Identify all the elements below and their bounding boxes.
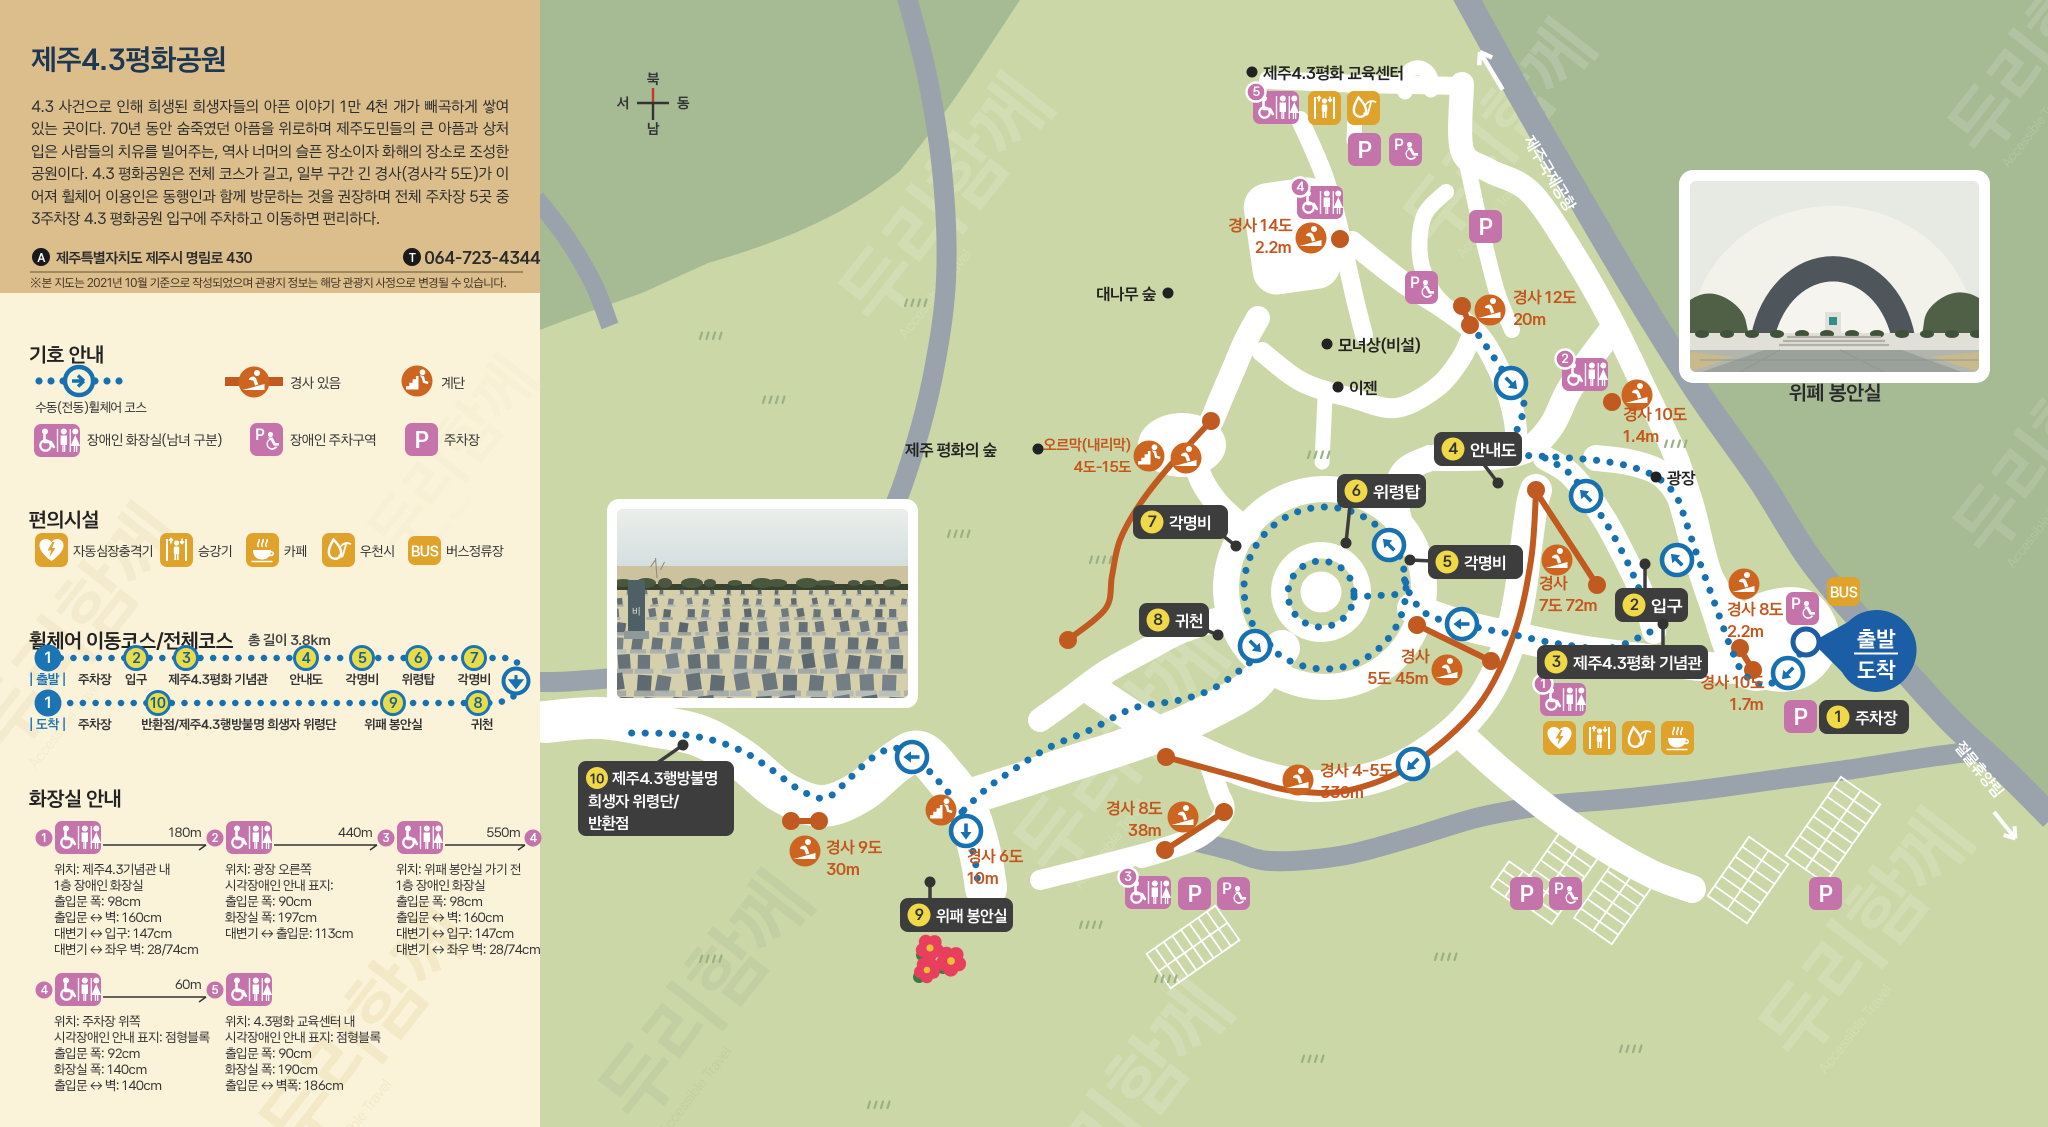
svg-text:1: 1 [44,693,51,712]
svg-text:30m: 30m [826,860,860,880]
svg-text:광장: 광장 [1667,469,1695,489]
svg-text:4: 4 [530,831,538,845]
svg-text:위치: 제주4.3기념관 내: 위치: 제주4.3기념관 내 [53,862,170,878]
svg-text:2: 2 [1562,352,1569,367]
svg-text:자동심장충격기: 자동심장충격기 [72,544,153,560]
svg-text:위치: 주차장 위쪽: 위치: 주차장 위쪽 [53,1014,140,1030]
svg-text:경사 8도: 경사 8도 [1106,799,1162,819]
svg-text:반환점: 반환점 [588,813,629,833]
svg-text:대나무 숲: 대나무 숲 [1096,285,1157,305]
svg-text:경사 10도: 경사 10도 [1623,405,1687,425]
svg-text:대변기 ↔ 좌우 벽: 28/74cm: 대변기 ↔ 좌우 벽: 28/74cm [396,942,540,958]
svg-text:주차장: 주차장 [1855,709,1897,729]
svg-text:7: 7 [470,649,478,667]
svg-text:7도 72m: 7도 72m [1539,596,1598,616]
svg-text:편의시설: 편의시설 [29,508,99,533]
svg-text:2: 2 [1630,595,1639,614]
svg-text:출입문 ↔ 벽폭: 186cm: 출입문 ↔ 벽폭: 186cm [225,1078,343,1094]
svg-text:대변기 ↔ 입구: 147cm: 대변기 ↔ 입구: 147cm [54,926,171,942]
svg-text:2: 2 [132,649,140,667]
svg-text:경사 있음: 경사 있음 [290,375,341,392]
svg-text:주차장: 주차장 [78,717,112,733]
svg-text:4: 4 [1448,439,1458,458]
svg-text:시각장애인 안내 표지:: 시각장애인 안내 표지: [225,878,333,894]
svg-text:38m: 38m [1128,821,1162,841]
svg-text:기호 안내: 기호 안내 [29,343,104,368]
svg-text:2.2m: 2.2m [1255,238,1292,258]
svg-text:위치: 위패 봉안실 가기 전: 위치: 위패 봉안실 가기 전 [395,862,521,878]
svg-text:출발: 출발 [1857,625,1896,653]
svg-text:수동(전동)휠체어 코스: 수동(전동)휠체어 코스 [35,400,147,416]
svg-text:모녀상(비설): 모녀상(비설) [1338,336,1421,356]
svg-text:경사 12도: 경사 12도 [1513,288,1576,308]
svg-text:화장실 안내: 화장실 안내 [29,787,121,812]
svg-text:330m: 330m [1320,783,1364,803]
svg-text:| 출발 |: | 출발 | [29,672,66,688]
svg-text:시각장애인 안내 표지: 점형블록: 시각장애인 안내 표지: 점형블록 [54,1030,209,1046]
svg-text:출입문 폭: 98cm: 출입문 폭: 98cm [54,894,140,910]
svg-text:위폐 봉안실: 위폐 봉안실 [1789,381,1881,406]
svg-text:제주특별자치도 제주시 명림로 430: 제주특별자치도 제주시 명림로 430 [56,249,253,267]
svg-text:4: 4 [1296,180,1304,195]
svg-text:3: 3 [383,831,390,845]
svg-text:| 도착 |: | 도착 | [29,717,66,733]
svg-text:출입문 폭: 90cm: 출입문 폭: 90cm [225,1046,311,1062]
svg-text:1.7m: 1.7m [1730,695,1764,715]
svg-text:60m: 60m [175,977,201,993]
svg-text:각명비: 각명비 [1464,554,1506,574]
svg-text:1.4m: 1.4m [1623,427,1660,447]
svg-text:귀천: 귀천 [471,717,493,733]
svg-text:장애인 화장실(남녀 구분): 장애인 화장실(남녀 구분) [87,432,222,449]
svg-text:4: 4 [302,649,312,667]
svg-text:550m: 550m [486,825,520,841]
svg-text:경사 10도: 경사 10도 [1700,673,1764,693]
svg-text:10: 10 [150,694,166,712]
svg-text:안내도: 안내도 [289,672,323,688]
svg-text:제주4.3평화 교육센터: 제주4.3평화 교육센터 [1263,64,1404,84]
svg-text:우천시: 우천시 [360,544,394,560]
svg-text:승강기: 승강기 [198,544,232,560]
svg-text:위령탑: 위령탑 [1373,483,1421,503]
svg-text:각명비: 각명비 [1169,514,1211,534]
svg-text:경사 4-5도: 경사 4-5도 [1320,761,1393,781]
svg-text:출입문 ↔ 벽: 160cm: 출입문 ↔ 벽: 160cm [396,910,503,926]
svg-text:비: 비 [632,606,640,618]
svg-text:장애인 주차구역: 장애인 주차구역 [290,432,377,449]
svg-text:2.2m: 2.2m [1727,622,1764,642]
svg-text:위치: 4.3평화 교육센터 내: 위치: 4.3평화 교육센터 내 [224,1014,355,1030]
svg-text:반환점/제주4.3행방불명 희생자 위령단: 반환점/제주4.3행방불명 희생자 위령단 [141,717,337,733]
svg-text:위패 봉안실: 위패 봉안실 [936,907,1007,927]
svg-text:위치: 광장 오른쪽: 위치: 광장 오른쪽 [224,862,311,878]
svg-text:위령탑: 위령탑 [401,672,435,688]
svg-text:입구: 입구 [125,672,148,688]
svg-text:2: 2 [212,831,219,845]
svg-text:1: 1 [1540,677,1546,692]
svg-text:화장실 폭: 190cm: 화장실 폭: 190cm [224,1062,317,1078]
svg-text:경사 14도: 경사 14도 [1228,216,1292,236]
svg-text:4: 4 [41,983,49,997]
svg-text:각명비: 각명비 [457,672,490,688]
svg-text:오르막(내리막): 오르막(내리막) [1042,435,1131,454]
svg-text:경사: 경사 [1401,647,1430,667]
svg-text:5: 5 [1252,85,1260,100]
svg-text:서: 서 [616,94,629,112]
svg-text:10m: 10m [967,869,999,889]
svg-text:대변기 ↔ 좌우 벽: 28/74cm: 대변기 ↔ 좌우 벽: 28/74cm [54,942,198,958]
svg-text:제주4.3평화 기념관: 제주4.3평화 기념관 [168,672,268,688]
svg-text:각명비: 각명비 [345,672,378,688]
svg-text:3: 3 [1551,652,1560,671]
svg-text:주차장: 주차장 [78,672,112,688]
svg-text:※본 지도는 2021년 10월 기준으로 작성되었으며 관: ※본 지도는 2021년 10월 기준으로 작성되었으며 관광지 정보는 해당 … [30,275,506,290]
svg-text:1층 장애인 화장실: 1층 장애인 화장실 [54,878,143,894]
svg-text:계단: 계단 [441,375,465,392]
svg-text:440m: 440m [338,825,372,841]
svg-text:동: 동 [677,94,690,112]
svg-text:시각장애인 안내 표지: 점형블록: 시각장애인 안내 표지: 점형블록 [225,1030,380,1046]
svg-text:064-723-4344: 064-723-4344 [424,248,541,269]
svg-text:화장실 폭: 197cm: 화장실 폭: 197cm [224,910,316,926]
svg-text:180m: 180m [169,825,201,841]
svg-text:5: 5 [212,983,220,997]
svg-text:제주4.3평화공원: 제주4.3평화공원 [31,42,226,78]
svg-text:경사: 경사 [1539,574,1568,594]
svg-text:위패 봉안실: 위패 봉안실 [364,717,422,733]
svg-text:9: 9 [389,694,398,712]
svg-text:5: 5 [1442,552,1451,571]
svg-text:3: 3 [182,649,191,667]
svg-text:제주4.3행방불명: 제주4.3행방불명 [612,768,718,788]
svg-text:출입문 ↔ 벽: 140cm: 출입문 ↔ 벽: 140cm [54,1078,161,1094]
svg-text:대변기 ↔ 입구: 147cm: 대변기 ↔ 입구: 147cm [396,926,513,942]
svg-text:제주 평화의 숲: 제주 평화의 숲 [905,441,998,461]
svg-text:1: 1 [41,831,46,845]
svg-text:이젠: 이젠 [1349,379,1377,399]
svg-text:경사 8도: 경사 8도 [1727,600,1783,620]
svg-text:출입문 ↔ 벽: 160cm: 출입문 ↔ 벽: 160cm [54,910,161,926]
svg-text:경사 9도: 경사 9도 [826,838,882,858]
svg-text:10: 10 [590,772,604,788]
svg-text:7: 7 [1148,512,1157,531]
svg-text:귀천: 귀천 [1175,612,1203,632]
svg-text:대변기 ↔ 출입문: 113cm: 대변기 ↔ 출입문: 113cm [225,926,353,942]
svg-text:주차장: 주차장 [444,432,480,449]
svg-text:출입문 폭: 98cm: 출입문 폭: 98cm [396,894,482,910]
svg-text:총 길이 3.8km: 총 길이 3.8km [248,632,330,649]
svg-text:A: A [37,251,45,265]
svg-text:화장실 폭: 140cm: 화장실 폭: 140cm [53,1062,147,1078]
svg-text:버스정류장: 버스정류장 [446,544,504,560]
svg-text:1: 1 [1834,707,1841,726]
svg-text:5: 5 [358,649,367,667]
svg-text:카페: 카페 [284,544,307,560]
svg-text:입구: 입구 [1651,597,1682,617]
svg-text:1: 1 [44,648,51,667]
svg-text:희생자 위령단/: 희생자 위령단/ [588,791,679,811]
svg-text:8: 8 [474,694,483,712]
svg-text:남: 남 [647,120,660,138]
svg-text:4도-15도: 4도-15도 [1074,457,1133,476]
svg-text:안내도: 안내도 [1470,441,1516,461]
svg-text:도착: 도착 [1857,656,1896,684]
svg-text:8: 8 [1153,610,1162,629]
svg-text:20m: 20m [1513,310,1547,330]
svg-text:6: 6 [1351,481,1360,500]
svg-text:9: 9 [914,905,923,924]
svg-text:5도 45m: 5도 45m [1367,669,1429,689]
svg-text:출입문 폭: 92cm: 출입문 폭: 92cm [54,1046,140,1062]
svg-text:제주4.3평화 기념관: 제주4.3평화 기념관 [1573,654,1703,674]
svg-text:1층 장애인 화장실: 1층 장애인 화장실 [396,878,485,894]
svg-text:경사 6도: 경사 6도 [967,847,1023,867]
svg-text:출입문 폭: 90cm: 출입문 폭: 90cm [225,894,311,910]
svg-text:3: 3 [1124,870,1132,885]
svg-text:북: 북 [647,70,660,88]
svg-text:6: 6 [414,649,423,667]
